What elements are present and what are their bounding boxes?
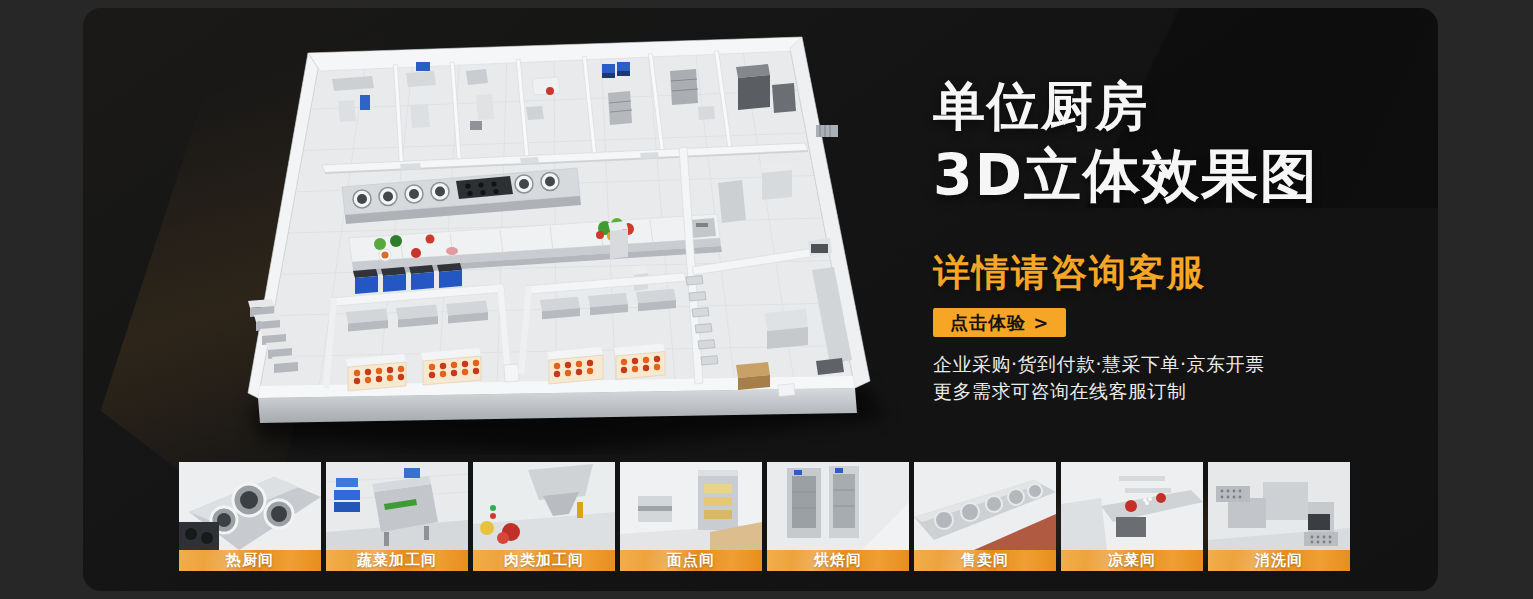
vegetable-processing-thumbnail-image [326, 462, 468, 550]
headline-line1: 单位厨房 [933, 72, 1149, 142]
headline-line2: 3D立体效果图 [933, 138, 1319, 215]
cold-dish-thumbnail-image [1061, 462, 1203, 550]
gallery-item-selling[interactable]: 售卖间 [914, 462, 1056, 571]
subtitle: 详情请咨询客服 [933, 248, 1206, 298]
gallery-item-washing[interactable]: 消洗间 [1208, 462, 1350, 571]
info-line1: 企业采购·货到付款·慧采下单·京东开票 [933, 352, 1265, 378]
washing-thumbnail-image [1208, 462, 1350, 550]
gallery-item-vegetable-processing[interactable]: 蔬菜加工间 [326, 462, 468, 571]
baking-thumbnail-image [767, 462, 909, 550]
gallery-item-baking[interactable]: 烘焙间 [767, 462, 909, 571]
room-gallery: 热厨间 蔬菜加工间 [179, 462, 1355, 571]
kitchen-3d-floorplan [220, 15, 900, 455]
room-label: 烘焙间 [767, 550, 909, 571]
room-label: 凉菜间 [1061, 550, 1203, 571]
pastry-thumbnail-image [620, 462, 762, 550]
selling-thumbnail-image [914, 462, 1056, 550]
room-label: 蔬菜加工间 [326, 550, 468, 571]
gallery-item-meat-processing[interactable]: 肉类加工间 [473, 462, 615, 571]
hot-kitchen-thumbnail-image [179, 462, 321, 550]
meat-processing-thumbnail-image [473, 462, 615, 550]
cta-button[interactable]: 点击体验 > [933, 308, 1066, 337]
room-label: 售卖间 [914, 550, 1056, 571]
room-label: 消洗间 [1208, 550, 1350, 571]
banner-root: 单位厨房 3D立体效果图 详情请咨询客服 点击体验 > 企业采购·货到付款·慧采… [0, 0, 1533, 599]
info-line2: 更多需求可咨询在线客服订制 [933, 379, 1187, 405]
room-label: 面点间 [620, 550, 762, 571]
gallery-item-cold-dish[interactable]: 凉菜间 [1061, 462, 1203, 571]
room-label: 热厨间 [179, 550, 321, 571]
room-label: 肉类加工间 [473, 550, 615, 571]
gallery-item-pastry[interactable]: 面点间 [620, 462, 762, 571]
gallery-item-hot-kitchen[interactable]: 热厨间 [179, 462, 321, 571]
